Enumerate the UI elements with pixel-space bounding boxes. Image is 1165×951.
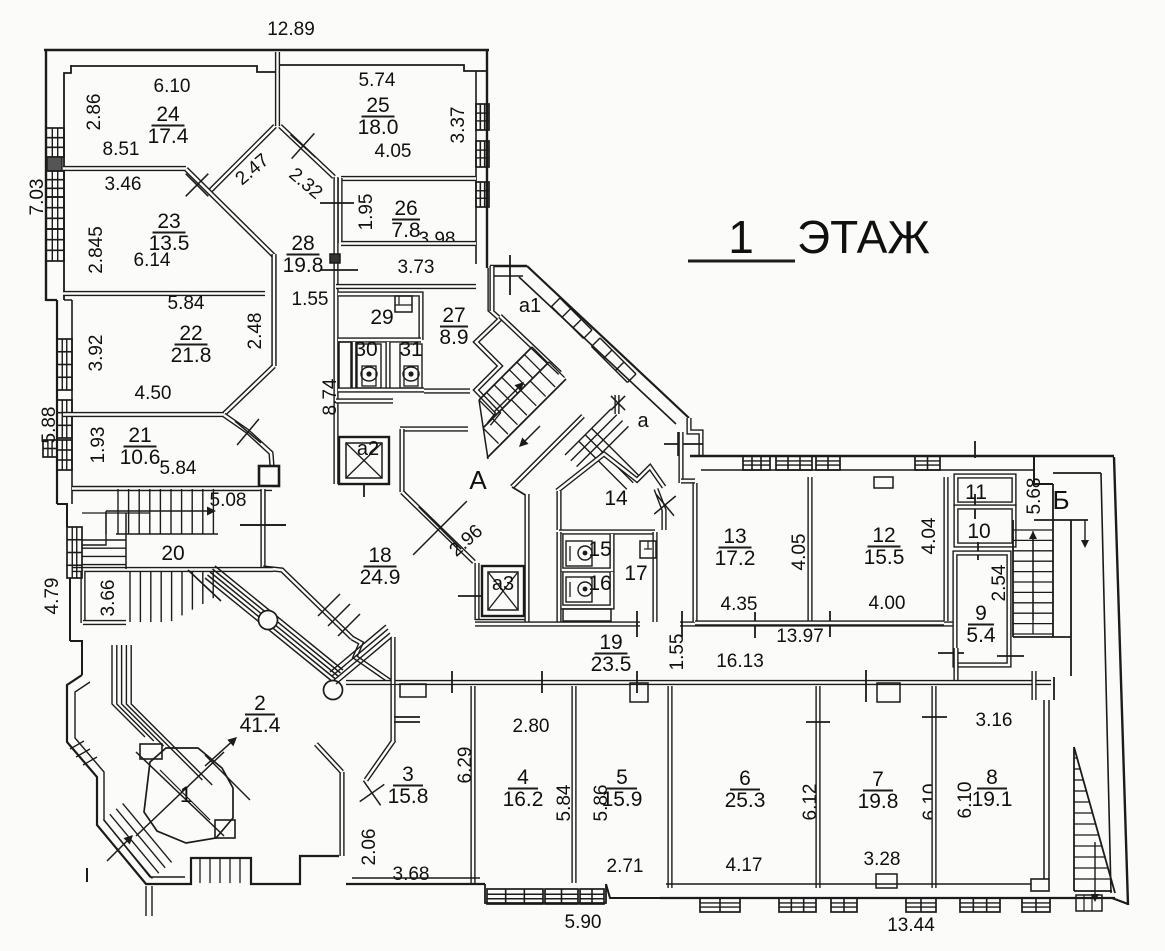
svg-text:2.06: 2.06 xyxy=(359,829,380,866)
svg-text:14: 14 xyxy=(604,487,628,510)
svg-text:2: 2 xyxy=(254,692,266,715)
svg-text:1.55: 1.55 xyxy=(667,634,688,671)
svg-text:2.54: 2.54 xyxy=(989,564,1010,601)
svg-text:15.8: 15.8 xyxy=(388,785,429,808)
svg-text:3.46: 3.46 xyxy=(105,174,142,195)
svg-text:1: 1 xyxy=(180,782,192,807)
svg-text:5.74: 5.74 xyxy=(359,70,396,91)
svg-text:а3: а3 xyxy=(492,573,514,595)
svg-text:5.90: 5.90 xyxy=(565,912,602,933)
svg-text:13.44: 13.44 xyxy=(887,915,935,936)
svg-text:16.13: 16.13 xyxy=(716,651,764,672)
svg-text:19: 19 xyxy=(599,631,622,654)
svg-text:3.28: 3.28 xyxy=(864,849,901,870)
svg-text:2.48: 2.48 xyxy=(245,313,266,350)
svg-text:3.37: 3.37 xyxy=(448,107,469,144)
svg-text:3.98: 3.98 xyxy=(419,229,456,250)
svg-text:3.66: 3.66 xyxy=(98,580,119,617)
svg-text:19.8: 19.8 xyxy=(858,790,899,813)
svg-text:8.51: 8.51 xyxy=(103,139,140,160)
svg-text:5.88: 5.88 xyxy=(39,407,60,444)
svg-text:2.86: 2.86 xyxy=(84,94,105,131)
svg-text:5.84: 5.84 xyxy=(160,458,197,479)
svg-text:5.08: 5.08 xyxy=(210,490,247,511)
svg-text:9: 9 xyxy=(975,602,987,625)
svg-text:3.16: 3.16 xyxy=(976,710,1013,731)
svg-text:4.00: 4.00 xyxy=(869,593,906,614)
svg-text:а: а xyxy=(637,410,649,432)
svg-text:12.89: 12.89 xyxy=(267,19,315,40)
svg-text:3.68: 3.68 xyxy=(393,864,430,885)
svg-text:23.5: 23.5 xyxy=(591,653,632,676)
svg-text:6.10: 6.10 xyxy=(154,76,191,97)
svg-text:3.92: 3.92 xyxy=(86,335,107,372)
svg-text:4.50: 4.50 xyxy=(135,383,172,404)
svg-text:7.03: 7.03 xyxy=(27,179,48,216)
svg-text:19.1: 19.1 xyxy=(972,788,1013,811)
svg-text:3: 3 xyxy=(402,763,414,786)
svg-text:2.845: 2.845 xyxy=(86,226,107,274)
svg-text:4.04: 4.04 xyxy=(919,517,940,554)
svg-text:5.84: 5.84 xyxy=(168,293,205,314)
svg-text:8.74: 8.74 xyxy=(320,378,341,415)
svg-text:25.3: 25.3 xyxy=(725,789,766,812)
svg-text:5: 5 xyxy=(616,766,628,789)
svg-text:13: 13 xyxy=(723,525,746,548)
svg-text:4.79: 4.79 xyxy=(42,578,63,615)
svg-text:6: 6 xyxy=(739,767,751,790)
svg-text:21: 21 xyxy=(128,424,151,447)
svg-text:18.0: 18.0 xyxy=(358,116,399,139)
svg-text:30: 30 xyxy=(354,338,377,361)
svg-text:8.9: 8.9 xyxy=(439,326,468,349)
svg-text:7.8: 7.8 xyxy=(391,219,420,242)
svg-text:19.8: 19.8 xyxy=(283,254,324,277)
svg-text:1.55: 1.55 xyxy=(292,289,329,310)
svg-text:4.05: 4.05 xyxy=(375,141,412,162)
svg-text:4.05: 4.05 xyxy=(789,534,810,571)
svg-text:8: 8 xyxy=(986,766,998,789)
svg-text:3.73: 3.73 xyxy=(398,257,435,278)
svg-text:27: 27 xyxy=(442,304,465,327)
svg-text:10.6: 10.6 xyxy=(120,446,161,469)
svg-text:26: 26 xyxy=(394,197,417,220)
svg-text:1: 1 xyxy=(728,211,754,263)
svg-text:1.93: 1.93 xyxy=(88,427,109,464)
svg-text:12: 12 xyxy=(872,524,895,547)
svg-text:15.9: 15.9 xyxy=(602,788,643,811)
svg-text:7: 7 xyxy=(872,768,884,791)
svg-text:1.95: 1.95 xyxy=(356,194,377,231)
svg-text:21.8: 21.8 xyxy=(171,344,212,367)
svg-text:17.4: 17.4 xyxy=(148,125,189,148)
svg-text:5.68: 5.68 xyxy=(1024,478,1045,515)
svg-text:17.2: 17.2 xyxy=(715,547,756,570)
svg-text:25: 25 xyxy=(366,94,389,117)
svg-text:17: 17 xyxy=(624,562,647,585)
svg-text:28: 28 xyxy=(291,232,314,255)
svg-text:а1: а1 xyxy=(519,295,541,317)
svg-text:ЭТАЖ: ЭТАЖ xyxy=(797,211,930,263)
svg-text:Б: Б xyxy=(1052,485,1069,515)
svg-text:13.97: 13.97 xyxy=(776,626,824,647)
svg-text:16.2: 16.2 xyxy=(503,788,544,811)
svg-text:11: 11 xyxy=(965,481,987,504)
svg-text:31: 31 xyxy=(399,338,422,361)
svg-text:6.10: 6.10 xyxy=(920,784,941,821)
svg-text:5.4: 5.4 xyxy=(966,624,996,647)
svg-text:а2: а2 xyxy=(357,438,379,460)
svg-text:15.5: 15.5 xyxy=(864,546,905,569)
svg-text:24: 24 xyxy=(156,103,180,126)
svg-text:23: 23 xyxy=(157,210,180,233)
svg-text:22: 22 xyxy=(179,322,202,345)
svg-text:4.35: 4.35 xyxy=(721,594,758,615)
svg-text:24.9: 24.9 xyxy=(360,566,401,589)
svg-text:41.4: 41.4 xyxy=(240,714,281,737)
svg-text:2.71: 2.71 xyxy=(607,856,644,877)
svg-text:18: 18 xyxy=(368,544,391,567)
svg-text:10: 10 xyxy=(967,520,990,543)
svg-text:2.80: 2.80 xyxy=(513,716,550,737)
svg-text:4.17: 4.17 xyxy=(726,855,763,876)
svg-text:А: А xyxy=(469,465,487,495)
svg-text:6.14: 6.14 xyxy=(134,250,171,271)
svg-text:20: 20 xyxy=(161,542,184,565)
svg-text:29: 29 xyxy=(370,306,393,329)
svg-text:4: 4 xyxy=(517,766,529,789)
